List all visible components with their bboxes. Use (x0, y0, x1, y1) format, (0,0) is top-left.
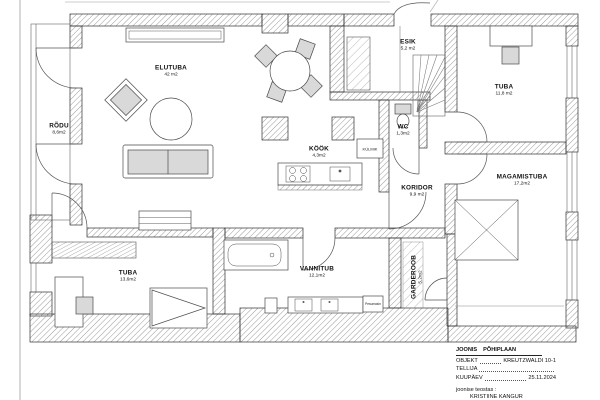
bathtub (224, 240, 288, 270)
fridge-label: KÜLMIK (363, 147, 378, 152)
room-label-rodu: RÕDU 8,6m2 (49, 122, 69, 135)
joonis-label: JOONIS (456, 347, 477, 354)
room-label-koridor: KORIDOR 9,9 m2 (401, 184, 433, 197)
kuupaev-label: KUUPÄEV (456, 375, 483, 382)
armchair (105, 79, 147, 121)
room-label-esik: ESIK 5,2 m2 (400, 38, 416, 51)
title-block-client-row: TELLIJA (456, 366, 556, 373)
chest-of-drawers (139, 211, 191, 230)
floor-plan-page: KÜLMIK Pesumasin (0, 0, 600, 400)
dining-table-set (255, 39, 323, 103)
dotted-leader (485, 380, 527, 381)
room-label-tuba-bottom: TUBA 13,6m2 (119, 269, 138, 282)
dotted-leader (480, 363, 502, 364)
title-block: JOONIS PÕHIPLAAN OBJEKT KREUTZWALDI 10-1… (456, 347, 556, 400)
washing-machine: Pesumasin (363, 296, 383, 312)
author-caption: joonise teostas : (456, 387, 556, 394)
washer-label: Pesumasin (365, 302, 381, 306)
title-block-date-row: KUUPÄEV 25.11.2024 (456, 375, 556, 382)
objekt-label: OBJEKT (456, 358, 478, 365)
joonis-value: PÕHIPLAAN (483, 347, 516, 354)
tellija-label: TELLIJA (456, 366, 477, 373)
coffee-table (150, 98, 192, 140)
room-label-elutuba: ELUTUBA 42 m2 (155, 64, 187, 77)
title-block-drawing-row: JOONIS PÕHIPLAAN (456, 347, 542, 356)
objekt-value: KREUTZWALDI 10-1 (503, 358, 556, 365)
entry-closet (347, 37, 370, 90)
room-label-magamistuba: MAGAMISTUBA 17,2m2 (497, 173, 548, 186)
bed (455, 200, 564, 306)
room-label-kook: KÖÖK 4,3m2 (309, 145, 329, 158)
author-name: KRISTIINE KANGUR (470, 394, 556, 400)
room-label-garderoob: GARDEROOB 5,2m2 (410, 255, 423, 299)
kitchen-counter (278, 163, 362, 190)
title-block-object-row: OBJEKT KREUTZWALDI 10-1 (456, 358, 556, 365)
sofa-bed (150, 288, 207, 328)
room-label-vannituba: VANNITUB 12,1m2 (300, 265, 334, 278)
radiator (52, 242, 136, 258)
floorplan-drawing: KÜLMIK Pesumasin (0, 0, 600, 400)
kuupaev-value: 25.11.2024 (528, 375, 556, 382)
room-label-wc: WC 1,3m2 (396, 123, 409, 136)
sofa (123, 145, 213, 178)
dotted-leader (479, 371, 554, 372)
tv-bench (126, 28, 224, 42)
desk-top-right (490, 26, 532, 64)
fridge: KÜLMIK (357, 139, 383, 158)
room-label-tuba-top: TUBA 11,8 m2 (495, 83, 514, 96)
